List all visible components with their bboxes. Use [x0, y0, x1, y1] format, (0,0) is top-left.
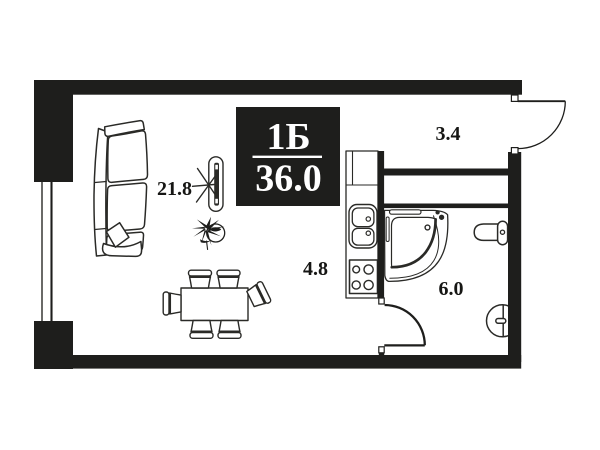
svg-text:1Б: 1Б [266, 116, 310, 158]
svg-text:6.0: 6.0 [439, 278, 464, 300]
svg-text:3.4: 3.4 [436, 123, 461, 145]
svg-text:36.0: 36.0 [255, 158, 322, 200]
svg-text:4.8: 4.8 [303, 258, 328, 280]
svg-text:21.8: 21.8 [157, 178, 192, 200]
